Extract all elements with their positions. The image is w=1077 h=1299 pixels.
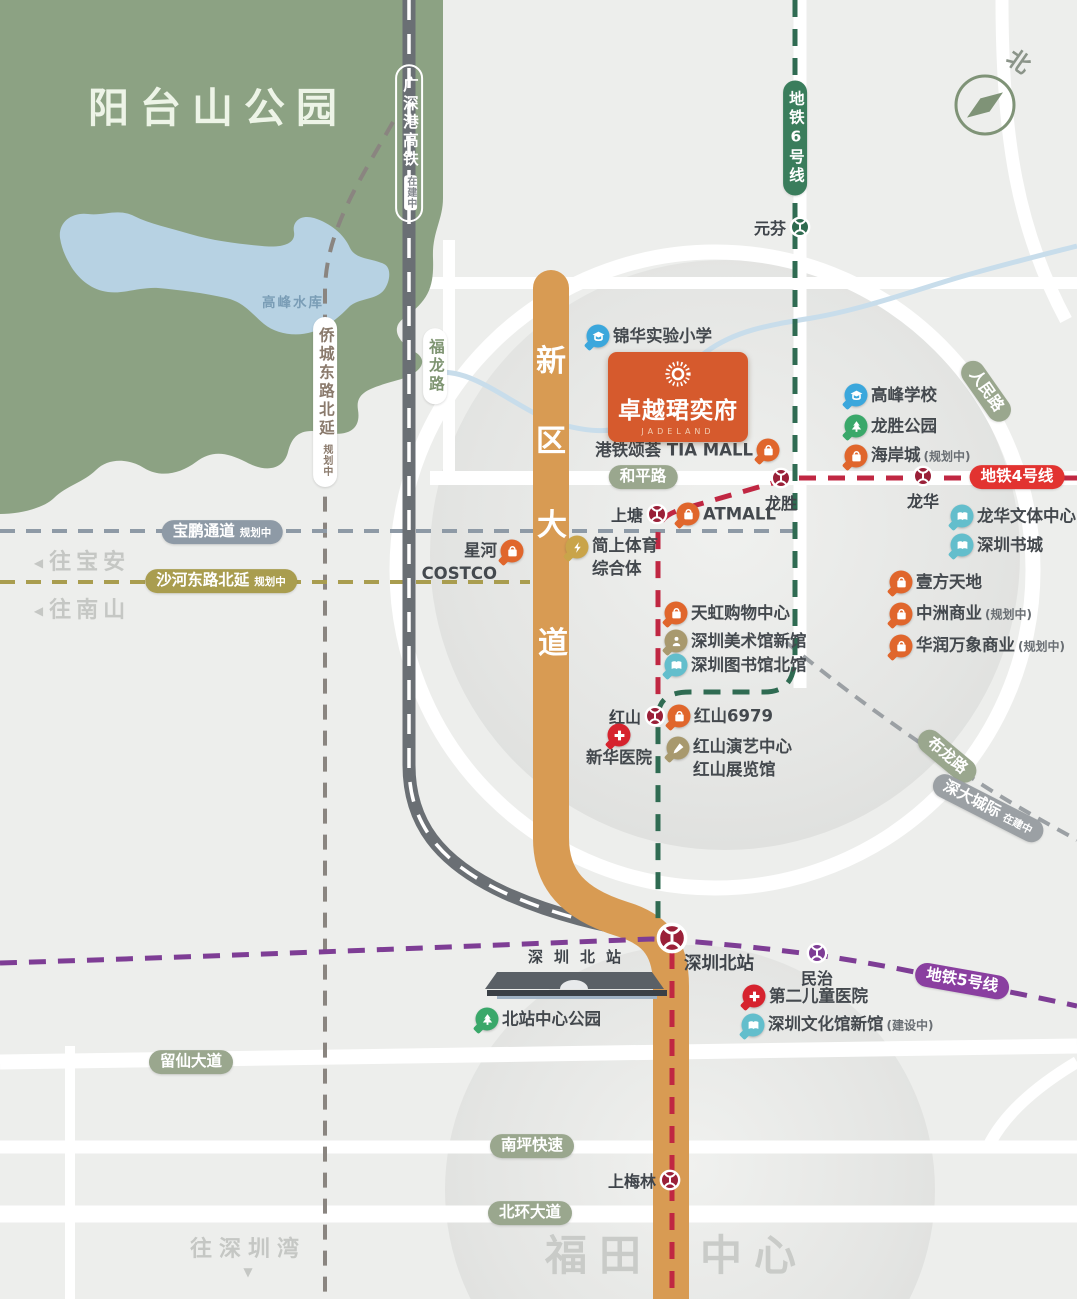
poi-label-text: 港铁颂荟 TIA MALL [595,441,753,460]
poi-label-text: 龙华文体中心 [977,507,1076,526]
poi-pin-sz-culture-hall-new [742,1014,765,1037]
station-icon-hongshan [644,705,667,728]
road-label-text: 和平路 [620,467,667,485]
poi-status: (规划中) [985,608,1032,622]
road-label-text: 沙河东路北延 [156,571,249,589]
poi-label-north-station-central-park: 北站中心公园 [502,1008,601,1031]
road-label-text: 侨城东路北延 [317,327,335,438]
road-label-liuxian-avenue: 留仙大道 [149,1050,233,1074]
park-icon [480,1012,494,1026]
poi-label-text: 第二儿童医院 [769,987,868,1006]
poi-label-text: 综合体 [592,559,642,578]
road-label-beihuan-avenue: 北环大道 [488,1201,572,1225]
poi-pin-jinhua-experimental-primary [587,325,610,348]
road-label-text: 人民路 [966,366,1007,414]
reservoir-label: 高峰水库 [262,291,324,311]
road-label-text: 福龙路 [427,338,445,394]
park-icon [849,419,863,433]
xinqu-avenue-char-1: 区 [536,416,566,460]
down-arrow-icon: ▼ [190,1265,306,1279]
poi-pin-atmall [677,503,700,526]
poi-label-sz-culture-hall-new: 深圳文化馆新馆(建设中) [768,1013,933,1038]
station-building-label: 深圳北站 [528,946,632,967]
direction-to-nanshan: ◀往南山 [34,592,130,624]
left-arrow-icon: ◀ [34,556,43,570]
art-icon [669,634,683,648]
poi-pin-gaofeng-school [845,384,868,407]
metro-station-icon [770,467,793,490]
poi-pin-hongshan-theatre [667,737,690,760]
poi-status: (规划中) [924,450,971,464]
station-icon-longsheng [770,467,793,490]
road-label-text: 南坪快速 [501,1136,563,1154]
poi-label-second-children-hospital: 第二儿童医院 [769,985,868,1008]
poi-label-jianshang-sports-complex: 简上体育综合体 [592,534,658,580]
poi-status: (建设中) [887,1019,934,1033]
road-label-text: 地铁6号线 [787,91,805,186]
poi-label-text: 高峰学校 [871,386,937,405]
station-icon-minzhi [806,942,829,965]
poi-pin-xinghe-costco [501,540,524,563]
poi-label-longsheng-park: 龙胜公园 [871,415,937,438]
road-label-status: 规划中 [254,576,286,588]
road-label-text: 布龙路 [924,733,971,777]
shopping-bag-icon [894,639,908,653]
poi-pin-jianshang-sports-complex [566,536,589,559]
poi-pin-longhua-culture-sports-center [951,505,974,528]
xinqu-avenue-char-2: 大 [537,500,567,544]
poi-pin-shenzhen-book-city [951,534,974,557]
shopping-bag-icon [681,507,695,521]
direction-label: 往南山 [49,598,130,623]
road-label-metro-line-6: 地铁6号线 [783,81,807,196]
location-map: 北 阳台山公园 高峰水库 福田 中心 深圳北站 卓越珺奕府 JADELAND 和… [0,0,1077,1299]
poi-label-text: 北站中心公园 [502,1010,601,1029]
poi-pin-rainbow-shopping-center [665,602,688,625]
poi-pin-hongshan-6979 [668,705,691,728]
poi-label-text: 海岸城 [871,446,921,465]
poi-label-yifang-tiandi: 壹方天地 [916,571,982,594]
road-label-renmin-road: 人民路 [957,356,1016,426]
shopping-bag-icon [761,443,775,457]
poi-pin-yifang-tiandi [890,571,913,594]
park-title: 阳台山公园 [88,74,348,134]
poi-label-text: 深圳文化馆新馆 [768,1015,884,1034]
station-label-shangtang: 上塘 [611,502,643,526]
poi-label-text: 深圳美术馆新馆 [691,632,807,651]
brush-icon [671,741,685,755]
road-label-qiaocheng-east-road-ext: 侨城东路北延规划中 [313,317,337,487]
road-label-heping-road: 和平路 [609,465,678,489]
poi-label-text: 深圳图书馆北馆 [691,656,807,675]
shopping-bag-icon [894,575,908,589]
poi-label-zhongzhou-commercial: 中洲商业(规划中) [916,602,1032,627]
metro-station-icon [646,503,669,526]
poi-label-xinhua-hospital: 新华医院 [586,746,652,769]
station-icon-yuanfen [789,216,812,239]
road-label-metro-line-5: 地铁5号线 [913,961,1010,1001]
station-icon-shangtang [646,503,669,526]
metro-station-icon [644,705,667,728]
poi-label-text: 新华医院 [586,748,652,767]
poi-label-gaofeng-school: 高峰学校 [871,384,937,407]
shopping-bag-icon [505,544,519,558]
project-card: 卓越珺奕府 JADELAND [608,352,748,442]
poi-pin-second-children-hospital [743,985,766,1008]
poi-label-text: 壹方天地 [916,573,982,592]
project-name: 卓越珺奕府 [618,391,738,425]
poi-label-text: 中洲商业 [916,604,982,623]
book-icon [955,509,969,523]
poi-label-rainbow-shopping-center: 天虹购物中心 [691,602,790,625]
poi-pin-coast-city [845,445,868,468]
poi-label-longhua-culture-sports-center: 龙华文体中心 [977,505,1076,528]
road-label-baopeng-channel: 宝鹏通道规划中 [162,520,283,544]
poi-label-text: 华润万象商业 [916,636,1015,655]
poi-label-text: 龙胜公园 [871,417,937,436]
poi-label-atmall: ATMALL [703,503,776,526]
direction-label: 往深圳湾 [190,1237,306,1262]
road-label-text: 地铁4号线 [981,467,1054,485]
poi-label-text: 深圳书城 [977,536,1043,555]
road-label-status: 在建中 [404,175,417,210]
poi-pin-cr-mixc-commercial [890,635,913,658]
station-label-longhua: 龙华 [907,488,939,512]
school-icon [591,329,605,343]
road-label-metro-line-4: 地铁4号线 [970,465,1065,489]
road-label-text: 北环大道 [499,1203,561,1221]
shopping-bag-icon [669,606,683,620]
poi-pin-sz-library-north [665,654,688,677]
road-label-text: 地铁5号线 [925,965,1000,995]
poi-label-text: 锦华实验小学 [613,327,712,346]
station-label-shangmeilin: 上梅林 [608,1168,656,1192]
left-arrow-icon: ◀ [34,604,43,618]
direction-to-shenzhen-bay: 往深圳湾▼ [190,1231,306,1279]
road-label-shahe-east-road-ext: 沙河东路北延规划中 [145,569,297,593]
road-label-text: 广深港高铁 [401,76,419,169]
road-label-guangshengang-hsr: 广深港高铁在建中 [395,64,423,222]
project-logo-icon [663,359,693,389]
poi-label-sz-art-museum-new: 深圳美术馆新馆 [691,630,807,653]
poi-label-text: 天虹购物中心 [691,604,790,623]
direction-label: 往宝安 [49,550,130,575]
poi-label-sz-library-north: 深圳图书馆北馆 [691,654,807,677]
marker-layer: 阳台山公园 高峰水库 福田 中心 深圳北站 卓越珺奕府 JADELAND 和平路… [0,0,1077,1299]
poi-label-text: 红山6979 [694,707,773,726]
metro-station-icon [659,1169,682,1192]
road-label-shenda-intercity: 深大城际在建中 [929,770,1047,846]
hospital-cross-icon [612,728,626,742]
poi-label-text: 星河 [464,541,497,560]
poi-pin-tia-mall [757,439,780,462]
road-label-fulong-road: 福龙路 [423,328,447,404]
xinqu-avenue-char-0: 新 [536,336,566,380]
project-subtitle: JADELAND [641,427,714,436]
shopping-bag-icon [894,607,908,621]
poi-pin-sz-art-museum-new [665,630,688,653]
sports-icon [570,540,584,554]
book-icon [955,538,969,552]
xinqu-avenue-char-3: 道 [538,618,568,662]
poi-pin-zhongzhou-commercial [890,603,913,626]
poi-label-text: 红山演艺中心 [693,737,792,756]
book-icon [746,1018,760,1032]
station-icon-shangmeilin [659,1169,682,1192]
road-label-text: 留仙大道 [160,1052,222,1070]
poi-label-jinhua-experimental-primary: 锦华实验小学 [613,325,712,348]
book-icon [669,658,683,672]
poi-label-coast-city: 海岸城(规划中) [871,444,970,469]
road-label-status: 规划中 [321,444,332,477]
poi-label-text: COSTCO [422,564,497,583]
poi-pin-north-station-central-park [476,1008,499,1031]
metro-station-icon [789,216,812,239]
road-label-status: 规划中 [240,527,272,539]
direction-to-baoan: ◀往宝安 [34,544,130,576]
poi-label-shenzhen-book-city: 深圳书城 [977,534,1043,557]
station-label-yuanfen: 元芬 [754,215,786,239]
poi-pin-longsheng-park [845,415,868,438]
poi-label-hongshan-theatre: 红山演艺中心红山展览馆 [693,735,792,781]
poi-pin-xinhua-hospital [608,724,631,747]
watermark-futian: 福田 [545,1222,653,1283]
road-label-status: 在建中 [1001,812,1035,837]
school-icon [849,388,863,402]
hospital-cross-icon [747,989,761,1003]
shopping-bag-icon [849,449,863,463]
road-label-text: 宝鹏通道 [173,522,235,540]
poi-label-cr-mixc-commercial: 华润万象商业(规划中) [916,634,1065,659]
road-label-text: 深大城际 [940,777,1003,821]
poi-label-text: 简上体育 [592,536,658,555]
poi-label-text: ATMALL [703,505,776,524]
road-label-nanping-expressway: 南坪快速 [490,1134,574,1158]
poi-label-text: 红山展览馆 [693,760,776,779]
poi-label-xinghe-costco: 星河COSTCO [422,539,497,585]
poi-status: (规划中) [1018,640,1065,654]
metro-station-icon [806,942,829,965]
poi-label-hongshan-6979: 红山6979 [694,705,773,728]
shopping-bag-icon [672,709,686,723]
station-label-shenzhen-north: 深圳北站 [684,950,754,975]
watermark-zhongxin: 中心 [700,1222,808,1283]
